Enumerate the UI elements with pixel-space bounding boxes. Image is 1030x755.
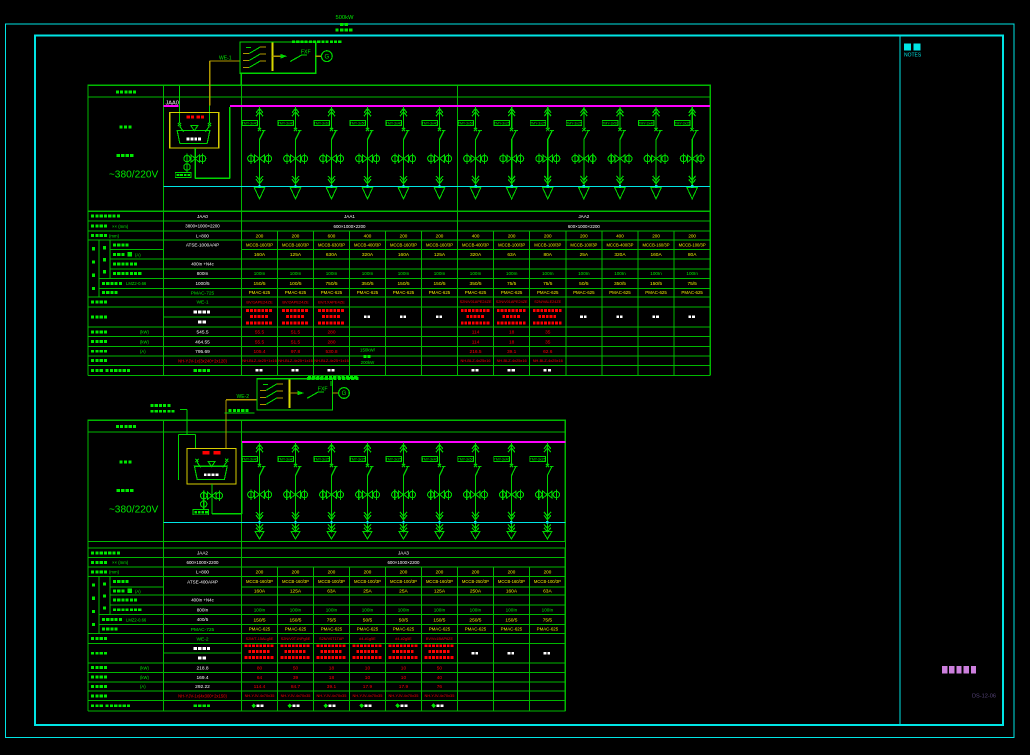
svg-text:100In: 100In	[362, 271, 374, 276]
svg-text:10: 10	[401, 665, 407, 671]
svg-text:JAA2: JAA2	[197, 551, 208, 556]
svg-text:545.5: 545.5	[196, 330, 208, 336]
svg-text:150/5: 150/5	[505, 617, 517, 623]
svg-text:NH-BLZ-4x25x16: NH-BLZ-4x25x16	[497, 358, 527, 363]
svg-text:200: 200	[580, 233, 588, 238]
svg-text:795.69: 795.69	[195, 349, 210, 355]
svg-text:PMAC-625: PMAC-625	[357, 627, 379, 632]
svg-text:200: 200	[400, 233, 408, 238]
svg-text:100In: 100In	[578, 271, 590, 276]
svg-text:200: 200	[544, 233, 552, 238]
svg-text:TMY-3x40: TMY-3x40	[278, 122, 294, 126]
svg-text:LMZ2-0.66: LMZ2-0.66	[126, 617, 147, 622]
svg-text:JAA2: JAA2	[578, 214, 589, 219]
svg-text:39: 39	[293, 675, 299, 681]
svg-text:TMY-3x25: TMY-3x25	[530, 122, 546, 126]
svg-text:25A: 25A	[363, 589, 372, 595]
svg-text:200: 200	[328, 569, 336, 574]
svg-text:3800×1000×2200: 3800×1000×2200	[185, 224, 220, 229]
svg-text:25A: 25A	[580, 252, 589, 258]
svg-text:WE-1: WE-1	[197, 300, 209, 306]
svg-text:150/5: 150/5	[289, 617, 301, 623]
svg-text:350/5: 350/5	[614, 281, 626, 287]
svg-text:150/5: 150/5	[650, 281, 662, 287]
svg-text:200: 200	[256, 569, 264, 574]
svg-text:150/5: 150/5	[433, 617, 445, 623]
svg-text:BV/Vc1BAP6ZE: BV/Vc1BAP6ZE	[426, 637, 454, 641]
svg-text:169.4: 169.4	[196, 675, 208, 681]
svg-text:TMY-3x50: TMY-3x50	[458, 458, 474, 462]
svg-text:200: 200	[364, 569, 372, 574]
svg-text:NH-BLZ-4x25+1x16: NH-BLZ-4x25+1x16	[242, 358, 277, 363]
svg-text:ATSE-1000A/4P: ATSE-1000A/4P	[186, 243, 219, 248]
svg-text:200: 200	[544, 569, 552, 574]
svg-text:600×1000×2200: 600×1000×2200	[334, 224, 367, 229]
svg-text:320A: 320A	[470, 252, 482, 258]
svg-text:100In: 100In	[686, 271, 698, 276]
svg-text:TMY-3x40: TMY-3x40	[242, 458, 258, 462]
svg-text:125A: 125A	[290, 589, 302, 595]
svg-text:(kW): (kW)	[140, 339, 149, 344]
svg-text:55.5: 55.5	[255, 330, 265, 336]
svg-text:100In: 100In	[254, 271, 266, 276]
svg-text:80A: 80A	[688, 252, 697, 258]
svg-text:400In +N4c: 400In +N4c	[191, 598, 214, 603]
svg-text:NH-BLZ-4x25+1x16: NH-BLZ-4x25+1x16	[314, 358, 349, 363]
svg-text:100In: 100In	[470, 607, 482, 612]
svg-text:50: 50	[293, 665, 299, 671]
svg-text:50/5: 50/5	[399, 617, 409, 623]
svg-text:JAA0: JAA0	[197, 214, 208, 219]
svg-text:MCCB-160/3P: MCCB-160/3P	[426, 242, 453, 247]
svg-text:114.4: 114.4	[254, 684, 266, 690]
svg-text:~380/220V: ~380/220V	[109, 505, 159, 516]
svg-text:PMAC-625: PMAC-625	[357, 290, 379, 295]
svg-text:35: 35	[545, 339, 551, 345]
svg-text:MCCB-160/3P: MCCB-160/3P	[643, 242, 670, 247]
svg-text:80A: 80A	[543, 252, 552, 258]
svg-text:350/5: 350/5	[361, 281, 373, 287]
svg-text:PMAC-625: PMAC-625	[393, 627, 415, 632]
svg-text:(mm): (mm)	[109, 233, 120, 238]
svg-text:75/5: 75/5	[507, 281, 517, 287]
svg-text:114: 114	[472, 339, 480, 345]
svg-text:NH-BLZ-4x25x16: NH-BLZ-4x25x16	[533, 358, 563, 363]
svg-text:(kW): (kW)	[140, 675, 149, 680]
svg-text:18: 18	[509, 339, 515, 345]
svg-text:S2N/V0T1NPg5E: S2N/V0T1NPg5E	[281, 637, 311, 641]
svg-text:100In: 100In	[470, 271, 482, 276]
svg-text:600: 600	[328, 233, 336, 238]
svg-text:BV/1APE24ZE: BV/1APE24ZE	[246, 299, 273, 304]
svg-text:MCCB-400/3P: MCCB-400/3P	[354, 242, 381, 247]
svg-text:MCCB-400/3P: MCCB-400/3P	[462, 242, 489, 247]
svg-text:MCCB-100/3P: MCCB-100/3P	[498, 242, 525, 247]
svg-text:MCCB-400/3P: MCCB-400/3P	[606, 242, 633, 247]
svg-text:MCCB-160/3P: MCCB-160/3P	[282, 579, 309, 584]
svg-text:100In: 100In	[542, 271, 554, 276]
svg-text:17.9: 17.9	[399, 684, 409, 690]
svg-text:160A: 160A	[398, 252, 410, 258]
svg-text:150/5: 150/5	[433, 281, 445, 287]
svg-text:TMY-3x25: TMY-3x25	[386, 458, 402, 462]
svg-text:S2N/V01APE24ZE: S2N/V01APE24ZE	[460, 300, 492, 304]
svg-text:~380/220V: ~380/220V	[109, 170, 159, 181]
svg-text:JAA0: JAA0	[166, 100, 179, 106]
svg-text:TMY-3x40: TMY-3x40	[242, 122, 258, 126]
svg-text:TMY-3x40: TMY-3x40	[278, 458, 294, 462]
svg-text:76: 76	[437, 684, 443, 690]
svg-text:400In +N4c: 400In +N4c	[191, 262, 214, 267]
svg-text:NH-YJV-4x70x35: NH-YJV-4x70x35	[425, 693, 455, 698]
svg-text:39.1: 39.1	[507, 349, 517, 355]
svg-text:125A: 125A	[434, 252, 446, 258]
svg-text:100In: 100In	[434, 607, 446, 612]
svg-text:39.1: 39.1	[327, 684, 337, 690]
svg-text:250/5: 250/5	[469, 617, 481, 623]
svg-text:PMAC-725: PMAC-725	[191, 290, 215, 296]
svg-text:WE-2: WE-2	[237, 394, 250, 400]
svg-text:63A: 63A	[543, 589, 552, 595]
svg-text:(kW): (kW)	[140, 330, 149, 335]
svg-text:800In: 800In	[197, 271, 209, 276]
svg-text:L=800: L=800	[196, 569, 209, 574]
svg-text:200kW: 200kW	[361, 360, 376, 365]
svg-text:TMY-3x25: TMY-3x25	[566, 122, 582, 126]
svg-text:100In: 100In	[290, 607, 302, 612]
svg-text:S2N/V01APE24ZE: S2N/V01APE24ZE	[496, 300, 528, 304]
svg-text:114: 114	[472, 330, 480, 336]
svg-text:97.8: 97.8	[291, 349, 301, 355]
svg-text:100In: 100In	[506, 607, 518, 612]
svg-text:62.6: 62.6	[543, 349, 553, 355]
svg-text:100In: 100In	[398, 271, 410, 276]
svg-text:100In: 100In	[398, 607, 410, 612]
svg-text:TMY-3x50: TMY-3x50	[602, 122, 618, 126]
svg-text:50/5: 50/5	[579, 281, 589, 287]
svg-text:1000/5: 1000/5	[195, 281, 209, 286]
svg-text:NH-BLZ-4x25x16: NH-BLZ-4x25x16	[461, 358, 491, 363]
svg-text:75/5: 75/5	[687, 281, 697, 287]
svg-text:150/5: 150/5	[253, 617, 265, 623]
svg-text:TMY-3x40: TMY-3x40	[422, 458, 438, 462]
svg-text:MCCB-100/3P: MCCB-100/3P	[354, 579, 381, 584]
svg-text:NH-YJV-1x(4x300+2x150): NH-YJV-1x(4x300+2x150)	[178, 694, 227, 699]
svg-text:160A: 160A	[506, 589, 518, 595]
svg-text:TMY-3x50: TMY-3x50	[350, 122, 366, 126]
svg-text:(mm): (mm)	[109, 570, 120, 575]
svg-text:×× (mm): ×× (mm)	[112, 224, 129, 229]
svg-text:PMAC-625: PMAC-625	[249, 290, 271, 295]
svg-text:TMY-3x25: TMY-3x25	[530, 458, 546, 462]
svg-text:NH-YJV-1x(3x240+2x120): NH-YJV-1x(3x240+2x120)	[178, 358, 227, 363]
svg-text:200: 200	[508, 569, 516, 574]
svg-text:TMY-3x25: TMY-3x25	[350, 458, 366, 462]
svg-text:400: 400	[616, 233, 624, 238]
svg-text:(A): (A)	[140, 349, 146, 354]
svg-text:150kW/: 150kW/	[360, 348, 376, 353]
svg-text:100In: 100In	[326, 271, 338, 276]
svg-text:100In: 100In	[362, 607, 374, 612]
svg-text:×× (mm): ×× (mm)	[112, 560, 129, 565]
svg-text:JAA1: JAA1	[344, 214, 355, 219]
svg-text:160A: 160A	[650, 252, 662, 258]
svg-text:250A: 250A	[470, 589, 482, 595]
svg-text:MCCB-100/3P: MCCB-100/3P	[679, 242, 706, 247]
svg-text:MCCB-100/3P: MCCB-100/3P	[534, 579, 561, 584]
svg-text:630A: 630A	[326, 252, 338, 258]
svg-text:PMAC-625: PMAC-625	[285, 290, 307, 295]
svg-text:200: 200	[652, 233, 660, 238]
svg-text:50: 50	[437, 665, 443, 671]
svg-text:PMAC-625: PMAC-625	[537, 627, 559, 632]
svg-text:TMY-3x40: TMY-3x40	[638, 122, 654, 126]
svg-text:S2N/VALE24ZE: S2N/VALE24ZE	[534, 300, 561, 304]
svg-text:G: G	[324, 54, 329, 60]
svg-text:PMAC-625: PMAC-625	[501, 627, 523, 632]
svg-text:L=800: L=800	[196, 233, 209, 238]
svg-text:80: 80	[257, 665, 263, 671]
svg-text:200: 200	[472, 569, 480, 574]
svg-text:TMY-3x40: TMY-3x40	[386, 122, 402, 126]
svg-text:#4-#2g5E: #4-#2g5E	[395, 637, 412, 641]
svg-text:530.8: 530.8	[325, 349, 337, 355]
svg-text:PMAC-625: PMAC-625	[321, 290, 343, 295]
svg-text:100/5: 100/5	[289, 281, 301, 287]
svg-text:200: 200	[400, 569, 408, 574]
svg-text:PMAC-625: PMAC-625	[501, 290, 523, 295]
svg-text:LMZ2-0.66: LMZ2-0.66	[126, 281, 147, 286]
svg-text:51.5: 51.5	[291, 330, 301, 336]
svg-text:35: 35	[545, 330, 551, 336]
svg-text:10: 10	[401, 675, 407, 681]
svg-text:MCCB-160/3P: MCCB-160/3P	[498, 579, 525, 584]
svg-text:100In: 100In	[434, 271, 446, 276]
svg-text:#4-#1g5E: #4-#1g5E	[359, 637, 376, 641]
svg-text:PMAC-625: PMAC-625	[681, 290, 703, 295]
svg-text:75/5: 75/5	[327, 617, 337, 623]
svg-text:NH-YJV-4x70x35: NH-YJV-4x70x35	[389, 693, 419, 698]
svg-text:105.4: 105.4	[253, 349, 265, 355]
svg-text:600×1000×2200: 600×1000×2200	[387, 560, 420, 565]
svg-text:63A: 63A	[507, 252, 516, 258]
svg-text:17.9: 17.9	[363, 684, 373, 690]
svg-text:600×1000×2200: 600×1000×2200	[568, 224, 601, 229]
svg-text:200: 200	[508, 233, 516, 238]
svg-text:18: 18	[329, 665, 335, 671]
svg-text:TMY-3x40: TMY-3x40	[422, 122, 438, 126]
svg-text:PMAC-625: PMAC-625	[393, 290, 415, 295]
svg-text:280: 280	[327, 330, 335, 336]
svg-text:51.5: 51.5	[291, 339, 301, 345]
svg-text:292.22: 292.22	[195, 684, 210, 690]
svg-text:320A: 320A	[362, 252, 374, 258]
svg-text:PMAC-625: PMAC-625	[321, 627, 343, 632]
svg-text:(A): (A)	[140, 684, 146, 689]
svg-text:FXF: FXF	[301, 50, 311, 56]
svg-text:TMY-3x25: TMY-3x25	[494, 122, 510, 126]
svg-text:PMAC-625: PMAC-625	[285, 627, 307, 632]
svg-text:FXF: FXF	[318, 386, 328, 392]
svg-text:200: 200	[292, 569, 300, 574]
svg-text:160A: 160A	[254, 252, 266, 258]
svg-text:500kW: 500kW	[335, 15, 354, 21]
svg-text:18: 18	[329, 675, 335, 681]
svg-text:JAA3: JAA3	[398, 551, 409, 556]
svg-text:400: 400	[364, 233, 372, 238]
svg-text:MCCB-160/3P: MCCB-160/3P	[390, 242, 417, 247]
svg-text:160A: 160A	[254, 589, 266, 595]
svg-text:464.55: 464.55	[195, 339, 210, 345]
svg-text:125A: 125A	[290, 252, 302, 258]
svg-text:MCCB-100/3P: MCCB-100/3P	[318, 579, 345, 584]
svg-text:55.5: 55.5	[255, 339, 265, 345]
svg-text:800In: 800In	[197, 607, 209, 612]
svg-text:MCCB-630/3P: MCCB-630/3P	[318, 242, 345, 247]
svg-text:MCCB-160/3P: MCCB-160/3P	[246, 242, 273, 247]
svg-text:PMAC-625: PMAC-625	[249, 627, 271, 632]
svg-text:400: 400	[472, 233, 480, 238]
svg-text:200: 200	[436, 569, 444, 574]
svg-text:DS-12-06: DS-12-06	[972, 694, 996, 700]
svg-text:100In: 100In	[506, 271, 518, 276]
svg-text:100In: 100In	[326, 607, 338, 612]
svg-text:MCCB-160/3P: MCCB-160/3P	[426, 579, 453, 584]
svg-text:64: 64	[257, 675, 263, 681]
svg-text:(A): (A)	[135, 252, 141, 257]
svg-text:MCCB-100/3P: MCCB-100/3P	[390, 579, 417, 584]
svg-text:75/5: 75/5	[543, 281, 553, 287]
svg-text:350/5: 350/5	[470, 281, 482, 287]
svg-text:40: 40	[437, 675, 443, 681]
svg-text:MCCB-100/3P: MCCB-100/3P	[570, 242, 597, 247]
svg-text:125A: 125A	[434, 589, 446, 595]
svg-text:(A): (A)	[135, 589, 141, 594]
svg-text:100In: 100In	[254, 607, 266, 612]
svg-text:PMAC-625: PMAC-625	[645, 290, 667, 295]
svg-text:BV/1XAPE4ZE: BV/1XAPE4ZE	[318, 299, 345, 304]
svg-text:MCCB-250/3P: MCCB-250/3P	[462, 579, 489, 584]
svg-text:G: G	[342, 391, 347, 397]
svg-text:10: 10	[365, 675, 371, 681]
svg-text:PMAC-725: PMAC-725	[191, 627, 215, 633]
svg-text:200: 200	[436, 233, 444, 238]
svg-text:750/5: 750/5	[325, 281, 337, 287]
svg-text:PMAC-625: PMAC-625	[609, 290, 631, 295]
svg-text:MCCB-160/3P: MCCB-160/3P	[246, 579, 273, 584]
svg-text:MCCB-100/3P: MCCB-100/3P	[534, 242, 561, 247]
svg-text:TMY-3x25: TMY-3x25	[674, 122, 690, 126]
svg-text:PMAC-625: PMAC-625	[537, 290, 559, 295]
svg-text:10: 10	[365, 665, 371, 671]
svg-text:200: 200	[292, 233, 300, 238]
svg-text:NH-YJV-4x70x35: NH-YJV-4x70x35	[353, 693, 383, 698]
svg-text:63A: 63A	[327, 589, 336, 595]
svg-text:600×1000×2200: 600×1000×2200	[187, 560, 220, 565]
svg-text:WE-2: WE-2	[197, 636, 209, 642]
svg-text:PMAC-625: PMAC-625	[465, 290, 487, 295]
svg-text:25A: 25A	[399, 589, 408, 595]
svg-text:PMAC-625: PMAC-625	[429, 627, 451, 632]
svg-text:150/5: 150/5	[397, 281, 409, 287]
svg-text:200: 200	[256, 233, 264, 238]
svg-text:100In: 100In	[290, 271, 302, 276]
svg-text:280: 280	[327, 339, 335, 345]
svg-text:TMY-3x25: TMY-3x25	[314, 458, 330, 462]
svg-text:84.7: 84.7	[291, 684, 301, 690]
svg-text:100In: 100In	[542, 607, 554, 612]
svg-text:200: 200	[688, 233, 696, 238]
svg-text:BV/2APE24ZE: BV/2APE24ZE	[282, 299, 309, 304]
svg-text:NH-BLZ-4x25+1x16: NH-BLZ-4x25+1x16	[278, 358, 313, 363]
svg-text:100In: 100In	[614, 271, 626, 276]
svg-text:(kW): (kW)	[140, 665, 149, 670]
svg-text:S2N/V0T1TAP: S2N/V0T1TAP	[319, 637, 344, 641]
svg-text:NOTES: NOTES	[904, 53, 922, 59]
svg-text:S2M/T-15ALg5E: S2M/T-15ALg5E	[246, 637, 274, 641]
svg-text:PMAC-625: PMAC-625	[429, 290, 451, 295]
svg-text:MCCB-160/3P: MCCB-160/3P	[282, 242, 309, 247]
svg-text:ATSE-400A/4P: ATSE-400A/4P	[187, 579, 218, 584]
svg-text:TMY-3x40: TMY-3x40	[494, 458, 510, 462]
svg-text:320A: 320A	[614, 252, 626, 258]
svg-text:PMAC-625: PMAC-625	[465, 627, 487, 632]
svg-text:TMY-3x50: TMY-3x50	[458, 122, 474, 126]
svg-text:75/5: 75/5	[543, 617, 553, 623]
svg-text:PMAC-625: PMAC-625	[573, 290, 595, 295]
svg-text:100In: 100In	[650, 271, 662, 276]
svg-text:NH-YJV-4x70x35: NH-YJV-4x70x35	[245, 693, 275, 698]
svg-text:218.8: 218.8	[196, 665, 208, 671]
svg-text:NH-YJV-4x70x35: NH-YJV-4x70x35	[317, 693, 347, 698]
svg-text:TMY-3x63: TMY-3x63	[314, 122, 330, 126]
svg-text:216.5: 216.5	[470, 349, 482, 355]
svg-text:400/5: 400/5	[197, 617, 209, 622]
svg-text:NH-YJV-4x70x35: NH-YJV-4x70x35	[281, 693, 311, 698]
svg-text:50/5: 50/5	[363, 617, 373, 623]
svg-text:150/5: 150/5	[253, 281, 265, 287]
svg-text:18: 18	[509, 330, 515, 336]
svg-text:WE-1: WE-1	[219, 55, 232, 61]
